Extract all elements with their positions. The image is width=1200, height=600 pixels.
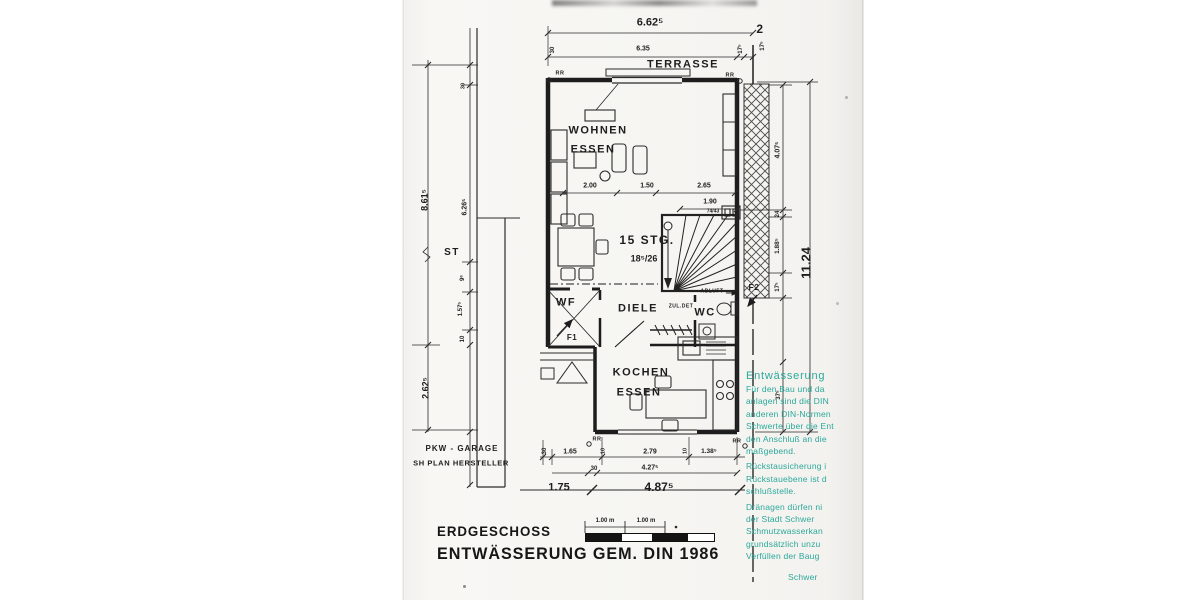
room-essen-wohnen: ESSEN xyxy=(571,145,616,156)
stamp-signature: Schwer xyxy=(788,571,839,583)
dim-left-total: 8.61⁵ xyxy=(421,189,430,211)
dim-bot-4: 2.79 xyxy=(643,449,657,456)
dim-living-1: 2.00 xyxy=(583,183,597,190)
entrance-steps xyxy=(540,353,595,383)
stamp-line: schlußstelle. xyxy=(746,485,839,497)
dim-bot-7: 30 xyxy=(591,466,598,472)
dim-bot-9: 1.75 xyxy=(548,483,569,494)
dim-bot-10: 4.87⁵ xyxy=(645,481,674,493)
stair-direction-arrow xyxy=(664,278,672,289)
dim-right-3: 1.88⁵ xyxy=(775,238,782,254)
scale-bar-segment xyxy=(652,534,688,541)
stamp-line: Schmutzwasserkan xyxy=(746,525,839,537)
dim-stair-width: 1.90 xyxy=(703,199,717,206)
scale-bar-segment xyxy=(688,534,714,541)
dim-bot-2: 1.65 xyxy=(563,449,577,456)
dim-right-1: 4.07⁵ xyxy=(775,142,782,159)
dim-top-left-tick: 30 xyxy=(550,47,556,54)
label-f2: F2 xyxy=(749,283,760,292)
boundary-number: 2 xyxy=(756,23,763,35)
rr-marker: RR xyxy=(593,437,602,443)
radiator xyxy=(650,325,692,335)
room-wf: WF xyxy=(556,298,576,309)
dim-bot-6: 1.38⁵ xyxy=(701,449,717,456)
stamp-line: anlagen sind die DIN xyxy=(746,395,839,407)
label-zul-det: ZUL.DET xyxy=(669,305,694,310)
garage-outline xyxy=(423,28,520,487)
stairs xyxy=(662,215,737,291)
dim-top-inner: 6.35 xyxy=(636,46,650,53)
title-drawing: ENTWÄSSERUNG GEM. DIN 1986 xyxy=(437,545,719,562)
garage-label-2: SH PLAN HERSTELLER xyxy=(413,459,509,467)
scanned-floor-plan: 6.62⁵ 6.35 30 17⁵ 17⁵ 2 TERRASSE RR RR R… xyxy=(0,0,1200,600)
dim-top-right-1: 17⁵ xyxy=(738,44,744,54)
dim-left-1: 6.26⁵ xyxy=(462,199,469,216)
dim-top-right-2: 17⁵ xyxy=(760,41,766,51)
scale-bar xyxy=(585,533,715,542)
room-wc: WC xyxy=(694,308,715,319)
dim-right-2: 24 xyxy=(775,211,781,218)
stamp-line: Entwässerung xyxy=(746,369,839,383)
dim-right-total: 11.24 xyxy=(800,247,813,279)
dim-bot-3: 10 xyxy=(601,448,607,454)
dim-living-2: 1.50 xyxy=(640,183,654,190)
dim-top-total: 6.62⁵ xyxy=(637,18,664,29)
room-diele: DIELE xyxy=(618,304,658,315)
dim-left-5: 10 xyxy=(460,336,466,343)
stamp-line: Für den Bau und da xyxy=(746,383,839,395)
plan-linework xyxy=(0,0,1200,600)
scale-label-2: 1.00 m xyxy=(637,518,656,524)
dim-bot-5: 10 xyxy=(683,448,689,454)
terrace-window xyxy=(596,69,690,110)
stamp-line: grundsätzlich unzu xyxy=(746,538,839,550)
shaft-size-label: 74/43 xyxy=(707,210,720,215)
scale-bar-segment xyxy=(586,534,622,541)
label-abluft: ABLUFT xyxy=(701,290,724,295)
stamp-line: Rückstausicherung i xyxy=(746,460,839,472)
approval-stamp: Entwässerung Für den Bau und da anlagen … xyxy=(746,369,839,583)
scale-bar-segment xyxy=(622,534,652,541)
kitchen-fixtures xyxy=(630,337,737,431)
dim-left-2: 30 xyxy=(461,83,467,89)
dim-left-4: 1.57⁵ xyxy=(458,302,464,317)
room-stairs: 15 STG. xyxy=(619,234,674,246)
dim-left-garage: 2.62⁵ xyxy=(422,377,431,399)
stairs-riser-label: 18⁵/26 xyxy=(631,255,658,264)
dim-living-3: 2.65 xyxy=(697,183,711,190)
hatched-party-wall xyxy=(744,84,769,298)
scale-label-1: 1.00 m xyxy=(596,518,615,524)
room-terrasse: TERRASSE xyxy=(647,60,719,71)
stamp-line: den Anschluß an die xyxy=(746,433,839,445)
stamp-line: Rückstauebene ist d xyxy=(746,473,839,485)
stamp-line: Verfüllen der Baug xyxy=(746,550,839,562)
stamp-line: anderen DIN-Normen xyxy=(746,408,839,420)
room-kochen: KOCHEN xyxy=(613,368,670,379)
dim-bot-8: 4.27⁵ xyxy=(642,465,659,472)
dim-bot-1: 30 xyxy=(542,448,548,455)
rr-marker: RR xyxy=(556,71,565,77)
dim-right-4: 17⁵ xyxy=(775,282,781,292)
rr-marker: RR xyxy=(733,439,742,445)
label-f1: F1 xyxy=(567,334,577,342)
stamp-line: Schwerte über die Ent xyxy=(746,420,839,432)
stamp-line: maßgebend. xyxy=(746,445,839,457)
rr-marker: RR xyxy=(726,73,735,79)
title-floor: ERDGESCHOSS xyxy=(437,524,551,538)
garage-label-1: PKW - GARAGE xyxy=(426,445,499,453)
label-st: ST xyxy=(444,248,460,258)
dim-left-3: 9⁶ xyxy=(460,275,466,281)
room-essen-kueche: ESSEN xyxy=(617,388,662,399)
room-wohnen: WOHNEN xyxy=(568,126,627,137)
break-symbol xyxy=(423,247,430,262)
stamp-line: der Stadt Schwer xyxy=(746,513,839,525)
stamp-line: Dränagen dürfen ni xyxy=(746,501,839,513)
